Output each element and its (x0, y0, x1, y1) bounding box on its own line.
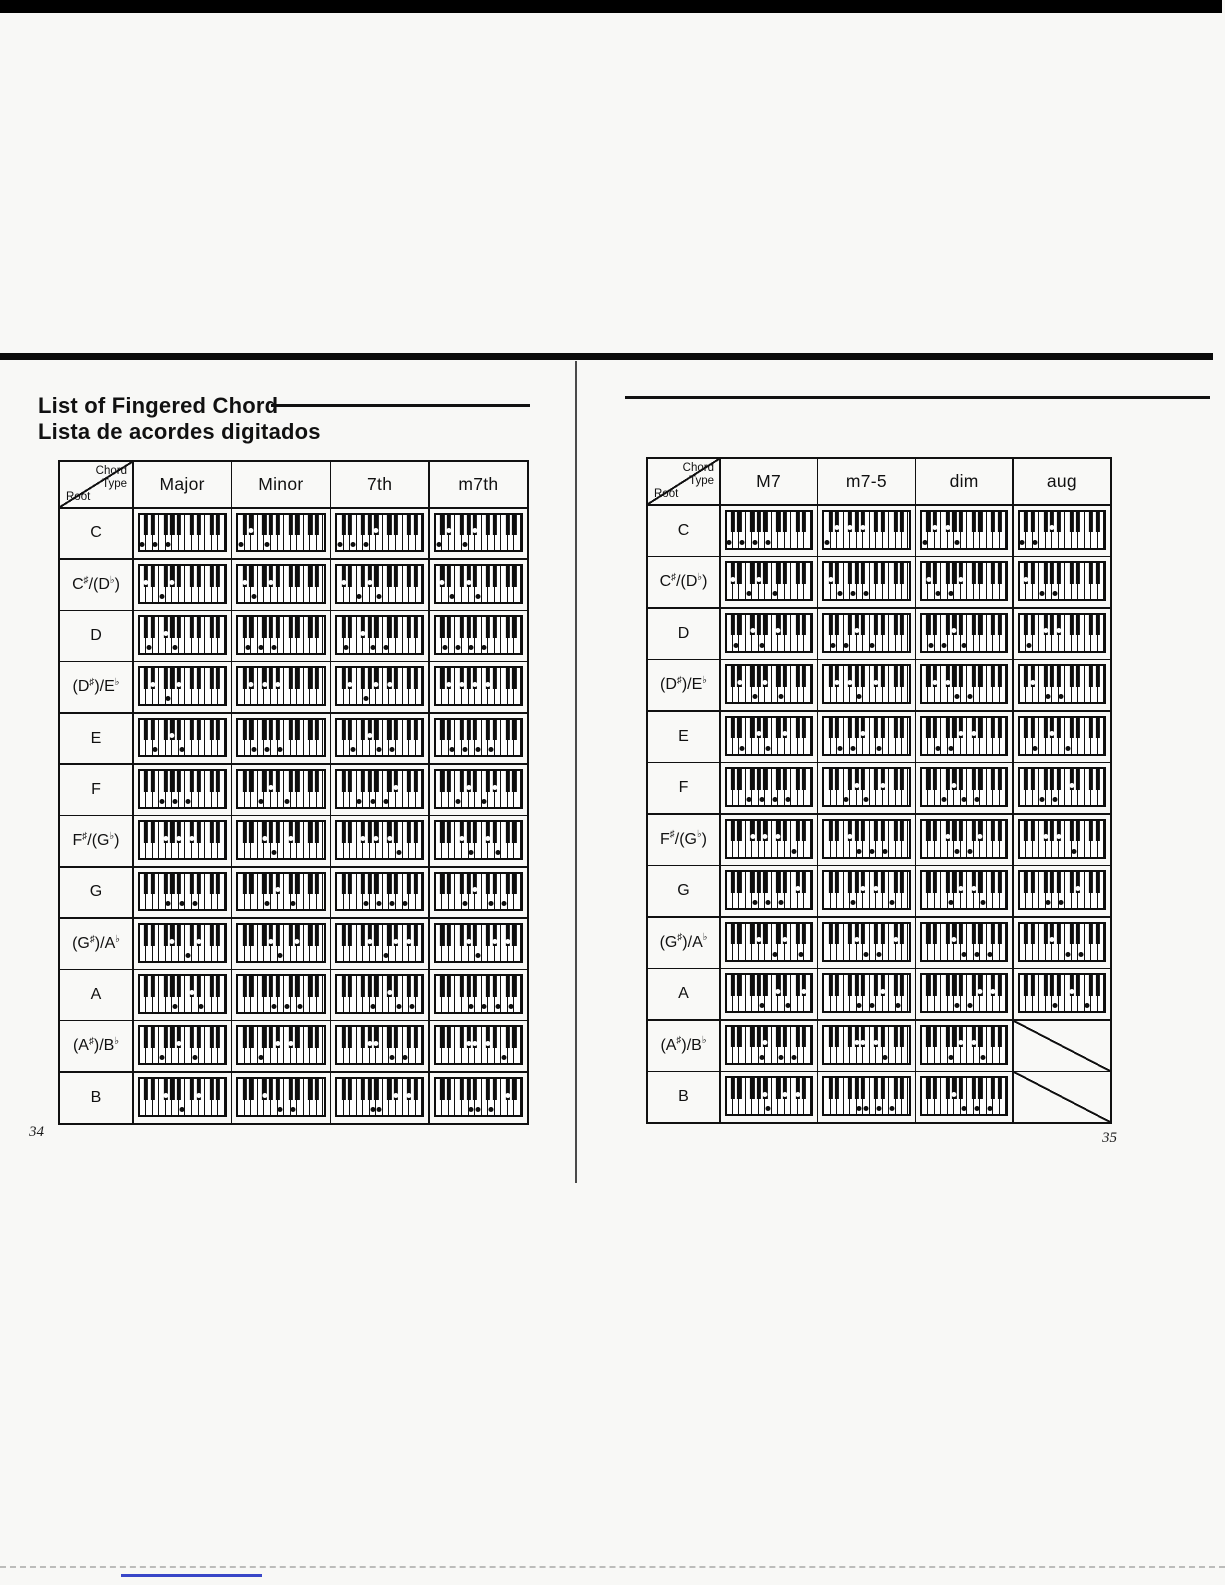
corner-root-label: Root (66, 491, 90, 503)
black-key (447, 1079, 451, 1100)
black-key (1024, 872, 1028, 893)
black-key (972, 821, 976, 842)
finger-dot (857, 694, 862, 699)
finger-dot (870, 849, 875, 854)
black-key (374, 925, 378, 946)
finger-dot (730, 577, 735, 582)
black-key (848, 872, 852, 893)
finger-dot (163, 1093, 168, 1098)
keyboard-diagram (920, 973, 1008, 1013)
black-key (802, 718, 806, 739)
chord-cell (1014, 660, 1110, 710)
black-key (243, 771, 247, 792)
black-key (466, 822, 470, 843)
chord-cell (232, 662, 329, 712)
chord-cell (916, 1072, 1012, 1122)
chord-cell (916, 763, 1012, 813)
black-key (783, 563, 787, 584)
finger-dot (750, 628, 755, 633)
black-key (874, 718, 878, 739)
black-key (414, 720, 418, 741)
finger-dot (367, 580, 372, 585)
black-key (900, 563, 904, 584)
black-key (1089, 821, 1093, 842)
finger-dot (991, 989, 996, 994)
black-key (407, 1027, 411, 1048)
black-key (946, 872, 950, 893)
black-key (460, 668, 464, 689)
black-key (447, 566, 451, 587)
black-key (926, 769, 930, 790)
black-key (1024, 769, 1028, 790)
black-key (275, 1027, 279, 1048)
finger-dot (186, 799, 191, 804)
finger-dot (192, 901, 197, 906)
black-key (348, 874, 352, 895)
black-key (893, 924, 897, 945)
black-key (796, 1027, 800, 1048)
black-key (952, 924, 956, 945)
black-key (1057, 718, 1061, 739)
black-key (855, 821, 859, 842)
black-key (407, 822, 411, 843)
black-key (900, 512, 904, 533)
keyboard-diagram (434, 615, 523, 655)
black-key (269, 566, 273, 587)
black-key (757, 924, 761, 945)
black-key (262, 874, 266, 895)
black-key (972, 1078, 976, 1099)
black-key (473, 515, 477, 536)
right-page-rule (625, 396, 1210, 399)
finger-dot (446, 682, 451, 687)
finger-dot (462, 542, 467, 547)
black-key (880, 975, 884, 996)
black-key (249, 515, 253, 536)
finger-dot (733, 643, 738, 648)
black-key (796, 512, 800, 533)
black-key (170, 566, 174, 587)
top-black-bar (0, 0, 1222, 13)
keyboard-diagram (920, 870, 1008, 910)
black-key (506, 822, 510, 843)
black-key (170, 617, 174, 638)
chord-cell (232, 509, 329, 559)
black-key (243, 720, 247, 741)
finger-dot (1043, 628, 1048, 633)
finger-dot (409, 1004, 414, 1009)
finger-dot (1043, 834, 1048, 839)
keyboard-diagram (236, 974, 325, 1014)
black-key (1089, 924, 1093, 945)
black-key (348, 668, 352, 689)
black-key (196, 925, 200, 946)
finger-dot (170, 939, 175, 944)
finger-dot (893, 937, 898, 942)
black-key (763, 769, 767, 790)
black-key (796, 769, 800, 790)
finger-dot (945, 525, 950, 530)
finger-dot (766, 746, 771, 751)
black-key (249, 771, 253, 792)
finger-dot (883, 849, 888, 854)
black-key (289, 720, 293, 741)
black-key (776, 512, 780, 533)
black-key (991, 512, 995, 533)
finger-dot (495, 1004, 500, 1009)
black-key (387, 720, 391, 741)
finger-dot (1026, 643, 1031, 648)
finger-dot (945, 834, 950, 839)
keyboard-diagram (335, 1077, 424, 1117)
black-key (440, 1079, 444, 1100)
black-key (802, 872, 806, 893)
black-key (447, 874, 451, 895)
black-key (835, 1078, 839, 1099)
black-key (493, 1079, 497, 1100)
black-key (750, 718, 754, 739)
black-key (466, 874, 470, 895)
finger-dot (189, 990, 194, 995)
black-key (946, 1027, 950, 1048)
black-key (848, 1078, 852, 1099)
black-key (829, 615, 833, 636)
black-key (262, 925, 266, 946)
black-key (210, 617, 214, 638)
black-key (414, 617, 418, 638)
black-key (763, 1078, 767, 1099)
black-key (460, 976, 464, 997)
keyboard-diagram (822, 973, 910, 1013)
black-key (1095, 872, 1099, 893)
finger-dot (874, 680, 879, 685)
root-label: C♯/(D♭) (60, 560, 132, 610)
keyboard-diagram (920, 664, 1008, 704)
black-key (933, 975, 937, 996)
black-key (926, 975, 930, 996)
black-key (295, 771, 299, 792)
black-key (874, 512, 878, 533)
black-key (763, 666, 767, 687)
black-key (796, 718, 800, 739)
black-key (269, 771, 273, 792)
finger-dot (874, 1040, 879, 1045)
black-key (315, 1027, 319, 1048)
finger-dot (935, 746, 940, 751)
black-key (361, 874, 365, 895)
black-key (861, 975, 865, 996)
black-key (926, 718, 930, 739)
black-key (164, 515, 168, 536)
black-key (829, 512, 833, 533)
chord-cell (232, 1021, 329, 1071)
chord-cell (331, 919, 428, 969)
black-key (1069, 975, 1073, 996)
black-key (1050, 769, 1054, 790)
black-key (512, 515, 516, 536)
black-key (855, 975, 859, 996)
finger-dot (987, 1106, 992, 1111)
black-key (893, 975, 897, 996)
black-key (959, 769, 963, 790)
finger-dot (1039, 797, 1044, 802)
finger-dot (374, 836, 379, 841)
black-key (486, 1079, 490, 1100)
black-key (269, 668, 273, 689)
finger-dot (337, 542, 342, 547)
finger-dot (291, 901, 296, 906)
black-key (959, 718, 963, 739)
finger-dot (1059, 900, 1064, 905)
black-key (874, 666, 878, 687)
black-key (933, 821, 937, 842)
black-key (880, 512, 884, 533)
black-key (1089, 615, 1093, 636)
chord-cell (232, 1073, 329, 1123)
black-key (368, 1027, 372, 1048)
black-key (243, 566, 247, 587)
black-key (737, 615, 741, 636)
black-key (275, 771, 279, 792)
black-key (731, 512, 735, 533)
finger-dot (863, 797, 868, 802)
chord-cell (1014, 506, 1110, 556)
black-key (196, 1079, 200, 1100)
black-key (262, 720, 266, 741)
black-key (368, 515, 372, 536)
finger-dot (179, 747, 184, 752)
black-key (1031, 975, 1035, 996)
black-key (933, 615, 937, 636)
black-key (1076, 718, 1080, 739)
black-key (249, 822, 253, 843)
black-key (959, 821, 963, 842)
chord-cell (331, 1073, 428, 1123)
black-key (164, 976, 168, 997)
black-key (731, 1027, 735, 1048)
finger-dot (844, 797, 849, 802)
black-key (493, 720, 497, 741)
black-key (861, 924, 865, 945)
finger-dot (265, 542, 270, 547)
finger-dot (958, 886, 963, 891)
chord-cell (430, 868, 527, 918)
keyboard-diagram (138, 820, 227, 860)
black-key (144, 515, 148, 536)
finger-dot (166, 696, 171, 701)
finger-dot (370, 645, 375, 650)
finger-dot (176, 1041, 181, 1046)
finger-dot (166, 542, 171, 547)
black-key (855, 1078, 859, 1099)
black-key (946, 615, 950, 636)
black-key (243, 925, 247, 946)
keyboard-diagram (434, 872, 523, 912)
black-key (874, 872, 878, 893)
keyboard-diagram (725, 767, 813, 807)
black-key (447, 1027, 451, 1048)
finger-dot (782, 937, 787, 942)
finger-dot (462, 901, 467, 906)
black-key (763, 718, 767, 739)
finger-dot (488, 747, 493, 752)
black-key (216, 1027, 220, 1048)
black-key (414, 925, 418, 946)
black-key (361, 822, 365, 843)
chord-cell (430, 714, 527, 764)
keyboard-diagram (434, 718, 523, 758)
black-key (295, 1027, 299, 1048)
finger-dot (199, 1004, 204, 1009)
finger-dot (746, 591, 751, 596)
black-key (506, 874, 510, 895)
black-key (1095, 512, 1099, 533)
black-key (315, 976, 319, 997)
black-key (150, 720, 154, 741)
chord-cell (430, 509, 527, 559)
black-key (466, 617, 470, 638)
black-key (757, 666, 761, 687)
keyboard-diagram (920, 716, 1008, 756)
black-key (374, 720, 378, 741)
black-key (374, 617, 378, 638)
finger-dot (363, 542, 368, 547)
black-key (269, 976, 273, 997)
black-key (776, 821, 780, 842)
black-key (512, 566, 516, 587)
black-key (315, 617, 319, 638)
black-key (150, 976, 154, 997)
black-key (387, 925, 391, 946)
black-key (466, 720, 470, 741)
black-key (196, 822, 200, 843)
keyboard-diagram (920, 561, 1008, 601)
finger-dot (971, 1040, 976, 1045)
black-key (249, 668, 253, 689)
finger-dot (776, 628, 781, 633)
black-key (991, 666, 995, 687)
black-key (486, 720, 490, 741)
black-key (1069, 563, 1073, 584)
black-key (763, 924, 767, 945)
keyboard-diagram (1018, 716, 1106, 756)
page-top-rule (0, 353, 1213, 360)
black-key (796, 821, 800, 842)
keyboard-diagram (335, 769, 424, 809)
black-key (262, 822, 266, 843)
finger-dot (874, 886, 879, 891)
finger-dot (776, 834, 781, 839)
black-key (440, 976, 444, 997)
keyboard-diagram (725, 510, 813, 550)
keyboard-diagram (822, 1076, 910, 1116)
black-key (368, 822, 372, 843)
finger-dot (275, 1041, 280, 1046)
black-key (1044, 615, 1048, 636)
black-key (750, 1027, 754, 1048)
finger-dot (952, 783, 957, 788)
black-key (991, 872, 995, 893)
keyboard-diagram (725, 1025, 813, 1065)
black-key (802, 924, 806, 945)
finger-dot (1069, 989, 1074, 994)
finger-dot (396, 1004, 401, 1009)
keyboard-diagram (236, 564, 325, 604)
finger-dot (482, 799, 487, 804)
black-key (874, 769, 878, 790)
black-key (1095, 769, 1099, 790)
chord-cell (232, 611, 329, 661)
corner-cell: ChordTypeRoot (60, 462, 132, 507)
finger-dot (759, 1055, 764, 1060)
black-key (374, 771, 378, 792)
finger-dot (153, 747, 158, 752)
black-key (460, 925, 464, 946)
finger-dot (196, 939, 201, 944)
black-key (978, 563, 982, 584)
black-key (440, 668, 444, 689)
chord-cell (232, 765, 329, 815)
finger-dot (288, 836, 293, 841)
black-key (394, 566, 398, 587)
black-key (802, 512, 806, 533)
page-divider-line (575, 361, 577, 1183)
finger-dot (475, 1107, 480, 1112)
black-key (1089, 512, 1093, 533)
black-key (387, 822, 391, 843)
keyboard-diagram (822, 613, 910, 653)
black-key (1057, 975, 1061, 996)
black-key (796, 975, 800, 996)
black-key (1095, 924, 1099, 945)
black-key (387, 771, 391, 792)
black-key (196, 976, 200, 997)
black-key (249, 1079, 253, 1100)
black-key (874, 821, 878, 842)
keyboard-diagram (236, 769, 325, 809)
keyboard-diagram (335, 820, 424, 860)
black-key (861, 718, 865, 739)
chord-cell (331, 1021, 428, 1071)
black-key (144, 1079, 148, 1100)
black-key (848, 821, 852, 842)
finger-dot (159, 799, 164, 804)
black-key (466, 668, 470, 689)
black-key (170, 515, 174, 536)
black-key (269, 925, 273, 946)
black-key (150, 668, 154, 689)
black-key (972, 563, 976, 584)
chord-cell (134, 662, 231, 712)
black-key (1031, 924, 1035, 945)
column-header: 7th (331, 462, 428, 507)
finger-dot (955, 1003, 960, 1008)
black-key (216, 771, 220, 792)
black-key (190, 822, 194, 843)
black-key (776, 975, 780, 996)
black-key (1089, 975, 1093, 996)
finger-dot (1050, 731, 1055, 736)
black-key (374, 822, 378, 843)
finger-dot (249, 682, 254, 687)
black-key (972, 666, 976, 687)
black-key (946, 1078, 950, 1099)
black-key (368, 668, 372, 689)
black-key (150, 771, 154, 792)
black-key (776, 666, 780, 687)
finger-dot (258, 645, 263, 650)
black-key (374, 1079, 378, 1100)
